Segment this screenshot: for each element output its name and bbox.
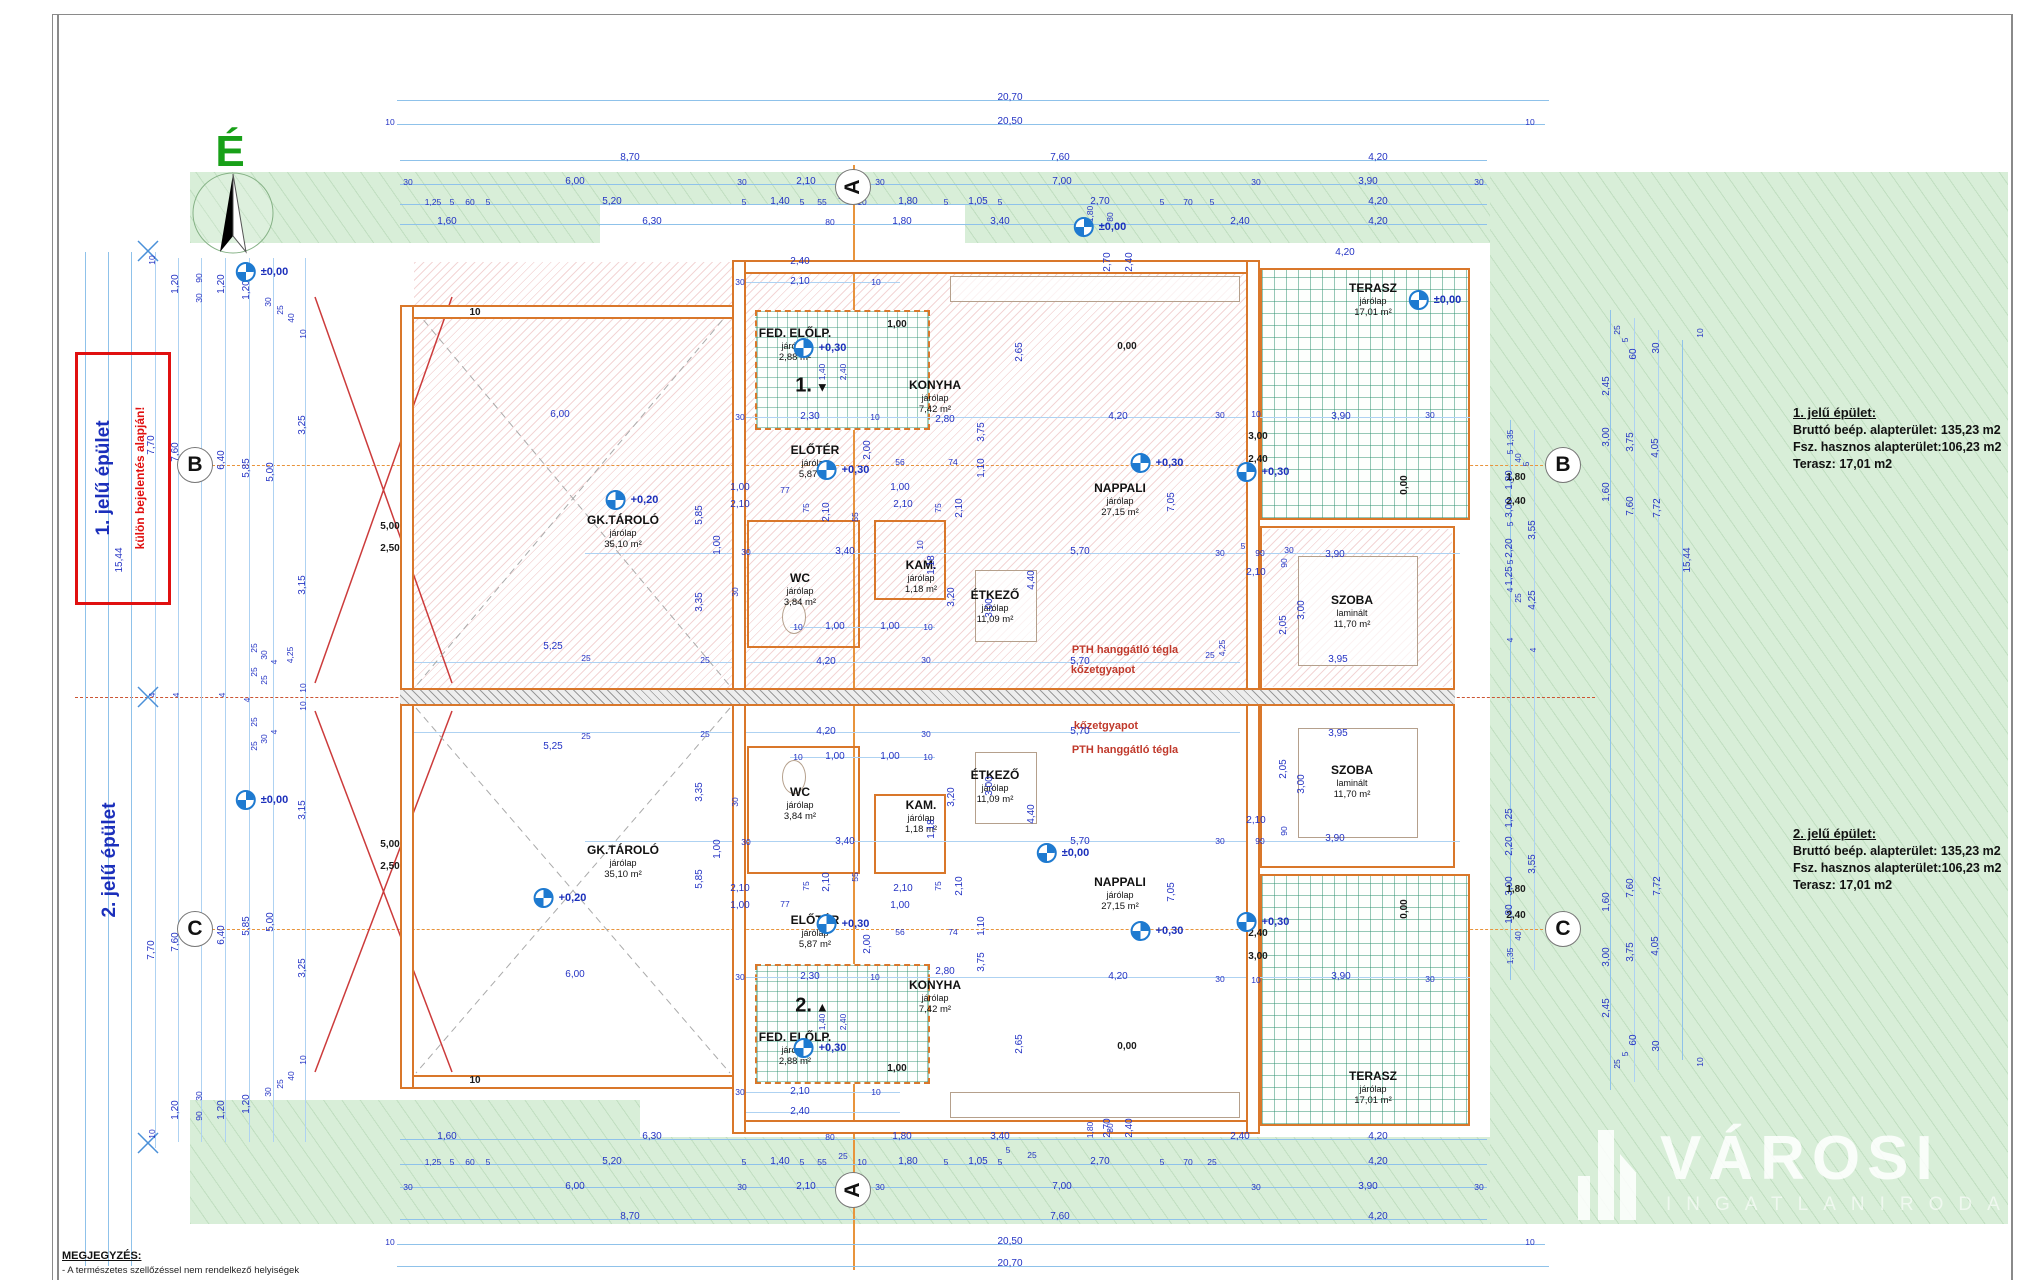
dimension-label: 30	[1215, 975, 1224, 984]
dim-line	[400, 1187, 1487, 1188]
room-name: ÉTKEZŐ	[971, 588, 1020, 603]
dimension-label: 6,00	[565, 970, 584, 980]
dimension-label: 10	[148, 255, 157, 264]
wall-house-top	[732, 260, 1260, 274]
dimension-label: 3,95	[1328, 729, 1347, 739]
info2-line: Terasz: 17,01 m2	[1793, 877, 2023, 894]
level-target-icon	[1074, 217, 1094, 237]
dimension-label: 2,05	[1279, 615, 1289, 634]
dimension-label: 4,20	[1368, 197, 1387, 207]
dimension-label: 25	[276, 1079, 285, 1088]
watermark-title: VÁROSI	[1660, 1128, 2015, 1190]
dimension-label: 2,50	[380, 862, 399, 872]
dimension-label: 25	[838, 1152, 847, 1161]
dimension-label: 10	[1525, 118, 1534, 127]
dimension-label: 1,80	[1086, 1122, 1095, 1139]
dimension-label: 5,00	[380, 522, 399, 532]
info1-line: Fsz. hasznos alapterület:106,23 m2	[1793, 439, 2023, 456]
room-area: 17,01 m²	[1349, 307, 1397, 319]
level-value: +0,30	[842, 464, 870, 476]
dimension-label: 3,35	[695, 592, 705, 611]
dimension-label: 1,00	[713, 535, 723, 554]
dimension-label: 40	[1514, 931, 1523, 940]
dimension-label: 5	[1621, 338, 1630, 343]
dimension-label: 90	[1255, 837, 1264, 846]
dimension-label: 3,55	[1528, 520, 1538, 539]
level-target-icon	[236, 790, 256, 810]
dimension-label: 10	[916, 540, 925, 549]
dimension-label: 1,25	[425, 1158, 442, 1167]
level-value: +0,30	[842, 918, 870, 930]
dimension-label: 25	[250, 741, 259, 750]
dimension-label: 30	[1251, 178, 1260, 187]
dimension-label: 70	[1183, 1158, 1192, 1167]
dimension-label: 1,80	[1506, 473, 1525, 483]
dimension-label: 15,44	[1683, 547, 1693, 572]
level-marker: +0,20	[606, 490, 659, 510]
dimension-label: 2,40	[1506, 911, 1525, 921]
dimension-label: 2,20	[1505, 538, 1515, 557]
room-area: 35,10 m²	[587, 869, 659, 881]
building1-banner-box	[75, 352, 171, 605]
dimension-label: 10	[299, 701, 308, 710]
dimension-label: 30	[264, 1087, 273, 1096]
dim-line	[1682, 340, 1683, 1060]
dimension-label: 4,05	[1651, 936, 1661, 955]
info1-line: Bruttó beép. alapterület: 135,23 m2	[1793, 422, 2023, 439]
dimension-label: 10	[1696, 328, 1705, 337]
room-area: 11,09 m²	[971, 614, 1020, 626]
watermark: VÁROSI INGATLANIRODA	[1660, 1128, 2015, 1216]
dimension-label: 30	[1215, 837, 1224, 846]
dimension-label: 5	[450, 198, 455, 207]
room-finish: járólap	[587, 858, 659, 869]
room-area: 27,15 m²	[1094, 901, 1146, 913]
dimension-label: 2,40	[1230, 1132, 1249, 1142]
info2-line: Bruttó beép. alapterület: 135,23 m2	[1793, 843, 2023, 860]
dimension-label: 30	[1284, 546, 1293, 555]
dimension-label: 7,72	[1653, 876, 1663, 895]
dimension-label: 2,70	[1103, 252, 1113, 271]
dimension-label: 30	[403, 1183, 412, 1192]
dimension-label: 4	[1529, 648, 1538, 653]
dimension-label: 55	[851, 512, 860, 521]
room-label: KONYHA járólap 7,42 m²	[909, 978, 961, 1016]
dimension-label: 55	[817, 198, 826, 207]
level-value: ±0,00	[1062, 847, 1089, 859]
dimension-label: 5,85	[242, 458, 252, 477]
dimension-label: 5	[944, 1158, 949, 1167]
room-name: NAPPALI	[1094, 875, 1146, 890]
room-name: KONYHA	[909, 978, 961, 993]
dimension-label: 2,10	[790, 1087, 809, 1097]
dimension-label: 3,40	[835, 547, 854, 557]
dimension-label: 30	[921, 656, 930, 665]
room-finish: járólap	[1349, 296, 1397, 307]
dimension-label: 2,10	[893, 500, 912, 510]
room-name: TERASZ	[1349, 281, 1397, 296]
room-name: WC	[784, 785, 816, 800]
dimension-label: 2,00	[863, 440, 873, 459]
room-label: SZOBA laminált 11,70 m²	[1331, 763, 1373, 801]
level-marker: +0,30	[1131, 921, 1184, 941]
dimension-label: 10	[793, 753, 802, 762]
kitchen-counter-2	[950, 1092, 1240, 1118]
room-name: NAPPALI	[1094, 481, 1146, 496]
dimension-label: 25	[276, 305, 285, 314]
dimension-label: 10	[1696, 1057, 1705, 1066]
entry-arrow-icon: ▲	[816, 1000, 829, 1015]
dimension-label: 10	[793, 623, 802, 632]
dimension-label: 1,00	[880, 752, 899, 762]
level-marker: +0,30	[794, 338, 847, 358]
level-value: +0,30	[1262, 916, 1290, 928]
room-area: 11,09 m²	[971, 794, 1020, 806]
sheet-border	[52, 14, 53, 1280]
dimension-label: 4	[1506, 588, 1515, 593]
dimension-label: 30	[921, 730, 930, 739]
level-target-icon	[606, 490, 626, 510]
dimension-label: 60	[465, 1158, 474, 1167]
dimension-label: 2,80	[935, 415, 954, 425]
level-target-icon	[817, 460, 837, 480]
material-note: PTH hanggátló tégla	[1072, 744, 1178, 756]
dimension-label: 5	[800, 1158, 805, 1167]
dimension-label: 1,00	[825, 622, 844, 632]
dimension-label: 2,40	[839, 364, 848, 381]
dim-line	[400, 1219, 1487, 1220]
dimension-label: 10	[469, 1076, 480, 1086]
level-marker: ±0,00	[1037, 843, 1089, 863]
dim-line	[397, 1266, 1549, 1267]
room-name: GK.TÁROLÓ	[587, 513, 659, 528]
dimension-label: 5,85	[695, 505, 705, 524]
room-name: GK.TÁROLÓ	[587, 843, 659, 858]
room-area: 35,10 m²	[587, 539, 659, 551]
dimension-label: 40	[287, 313, 296, 322]
dimension-label: 2,65	[1015, 1034, 1025, 1053]
building2-label: 2. jelű épület	[99, 802, 121, 917]
dimension-label: 5	[800, 198, 805, 207]
dim-line	[400, 1139, 1487, 1140]
dimension-label: 75	[934, 881, 943, 890]
dimension-label: 90	[1280, 826, 1289, 835]
dimension-label: 7,60	[1626, 496, 1636, 515]
dimension-label: 30	[875, 178, 884, 187]
dimension-label: 4	[218, 693, 227, 698]
dimension-label: 6,30	[642, 1132, 661, 1142]
dimension-label: 2,10	[730, 884, 749, 894]
dimension-label: 25	[581, 654, 590, 663]
dim-line	[735, 417, 1470, 418]
dimension-label: 10	[299, 683, 308, 692]
material-note: PTH hanggátló tégla	[1072, 644, 1178, 656]
dimension-label: 3,90	[1358, 1182, 1377, 1192]
dimension-label: 30	[264, 297, 273, 306]
dim-line	[397, 100, 1549, 101]
dimension-label: 30	[1251, 1183, 1260, 1192]
dimension-label: 10	[870, 973, 879, 982]
dimension-label: 7,05	[1167, 882, 1177, 901]
dimension-label: 1,60	[437, 217, 456, 227]
dimension-label: 4,25	[286, 647, 295, 664]
dimension-label: 3,00	[1297, 600, 1307, 619]
dimension-label: 30	[1215, 549, 1224, 558]
room-finish: járólap	[909, 993, 961, 1004]
dimension-label: 20,50	[997, 117, 1022, 127]
dimension-label: 2,45	[1602, 376, 1612, 395]
dimension-label: 10	[385, 1238, 394, 1247]
dimension-label: 20,50	[997, 1237, 1022, 1247]
dimension-label: 0,00	[1117, 342, 1136, 352]
dimension-label: 20,70	[997, 1259, 1022, 1269]
level-value: ±0,00	[1434, 294, 1461, 306]
dimension-label: 2,70	[1103, 1118, 1113, 1137]
dimension-label: 25	[1207, 1158, 1216, 1167]
dimension-label: 10	[870, 413, 879, 422]
room-area: 27,15 m²	[1094, 507, 1146, 519]
room-area: 11,70 m²	[1331, 789, 1373, 801]
wall-garage-top	[400, 305, 746, 319]
level-marker: ±0,00	[1074, 217, 1126, 237]
dimension-label: 5,85	[695, 869, 705, 888]
level-value: +0,20	[559, 892, 587, 904]
dim-line	[1534, 430, 1535, 970]
dimension-label: 6,30	[642, 217, 661, 227]
dimension-label: 4,20	[1335, 248, 1354, 258]
dimension-label: 2,40	[1230, 217, 1249, 227]
dimension-label: 1,40	[770, 1157, 789, 1167]
room-label: TERASZ járólap 17,01 m²	[1349, 1069, 1397, 1107]
dimension-label: 3,00	[1602, 427, 1612, 446]
room-label: GK.TÁROLÓ járólap 35,10 m²	[587, 843, 659, 881]
dimension-label: 6,00	[550, 410, 569, 420]
floor-plan-page: É 1. jelű épület külön bejelentés alapjá…	[0, 0, 2039, 1280]
dimension-label: 2,10	[893, 884, 912, 894]
grid-bubble: C	[1545, 911, 1581, 947]
dimension-label: 25	[1514, 593, 1523, 602]
room-finish: járólap	[784, 586, 816, 597]
dimension-label: 5	[1006, 1146, 1011, 1155]
room-label: NAPPALI járólap 27,15 m²	[1094, 875, 1146, 913]
dimension-label: 5,00	[266, 462, 276, 481]
dimension-label: 30	[741, 838, 750, 847]
entry-number: 1.	[795, 375, 812, 397]
level-target-icon	[1409, 290, 1429, 310]
level-marker: ±0,00	[236, 262, 288, 282]
dimension-label: 3,00	[1602, 947, 1612, 966]
dimension-label: 1,35	[1506, 430, 1515, 447]
dimension-label: 1,80	[898, 197, 917, 207]
dimension-label: 30	[195, 1091, 204, 1100]
dimension-label: 30	[731, 797, 740, 806]
level-target-icon	[1131, 453, 1151, 473]
room-name: ELŐTÉR	[791, 443, 840, 458]
dimension-label: 2,00	[863, 934, 873, 953]
dimension-label: 4	[148, 693, 157, 698]
kitchen-counter-1	[950, 276, 1240, 302]
dimension-label: 0,00	[1117, 1042, 1136, 1052]
dimension-label: 10	[1251, 410, 1260, 419]
grid-bubble: A	[835, 1172, 871, 1208]
dimension-label: 3,00	[985, 776, 995, 795]
notes-title: MEGJEGYZÉS:	[62, 1250, 299, 1262]
dimension-label: 4,05	[1651, 438, 1661, 457]
dim-line	[400, 160, 1487, 161]
dimension-label: 1,20	[242, 280, 252, 299]
dimension-label: 3,95	[1328, 655, 1347, 665]
dimension-label: 3,75	[977, 952, 987, 971]
dimension-label: 30	[735, 278, 744, 287]
dimension-label: 4,20	[816, 657, 835, 667]
room-name: KAM.	[905, 798, 937, 813]
dimension-label: 5,25	[543, 742, 562, 752]
dimension-label: 25	[250, 667, 259, 676]
dimension-label: 1,00	[890, 483, 909, 493]
building1-label: 1. jelű épület	[93, 420, 115, 535]
dimension-label: 5	[486, 1158, 491, 1167]
dimension-label: 2,40	[1506, 497, 1525, 507]
dimension-label: 1,60	[1602, 892, 1612, 911]
dimension-label: 30	[1425, 411, 1434, 420]
dimension-label: 3,90	[1331, 412, 1350, 422]
dimension-label: 2,20	[1505, 836, 1515, 855]
level-marker: ±0,00	[236, 790, 288, 810]
dimension-label: 2,10	[730, 500, 749, 510]
dimension-label: 2,10	[790, 277, 809, 287]
level-value: +0,30	[819, 342, 847, 354]
dimension-label: 30	[260, 650, 269, 659]
dimension-label: 30	[403, 178, 412, 187]
room-finish: laminált	[1331, 608, 1373, 619]
level-value: +0,30	[1262, 466, 1290, 478]
dimension-label: 4	[270, 730, 279, 735]
dimension-label: 1,00	[890, 901, 909, 911]
site-area	[190, 1100, 640, 1224]
dimension-label: 0,00	[1400, 475, 1410, 494]
dimension-label: 5,00	[380, 840, 399, 850]
dimension-label: 30	[1425, 975, 1434, 984]
dim-line	[790, 627, 935, 628]
grid-bubble: C	[177, 911, 213, 947]
dimension-label: 4	[243, 698, 252, 703]
dimension-label: 2,05	[1279, 759, 1289, 778]
dimension-label: 4,25	[1528, 590, 1538, 609]
dimension-label: 6,40	[217, 450, 227, 469]
dimension-label: 30	[737, 178, 746, 187]
room-finish: laminált	[1331, 778, 1373, 789]
dimension-label: 30	[741, 548, 750, 557]
dimension-label: 5	[450, 1158, 455, 1167]
room-finish: járólap	[587, 528, 659, 539]
dimension-label: 2,70	[1090, 1157, 1109, 1167]
notes-block: MEGJEGYZÉS: - A természetes szellőzéssel…	[62, 1250, 299, 1280]
dimension-label: 7,00	[1052, 177, 1071, 187]
site-area	[1490, 172, 2008, 1224]
dim-line	[740, 1112, 900, 1113]
room-label: SZOBA laminált 11,70 m²	[1331, 593, 1373, 631]
dimension-label: 60	[465, 198, 474, 207]
dimension-label: 1,10	[977, 458, 987, 477]
room-label: WC járólap 3,84 m²	[784, 785, 816, 823]
dimension-label: 1,60	[437, 1132, 456, 1142]
room-finish: járólap	[971, 603, 1020, 614]
dimension-label: 2,10	[1246, 568, 1265, 578]
room-area: 17,01 m²	[1349, 1095, 1397, 1107]
dimension-label: 1,25	[425, 198, 442, 207]
dimension-label: 5	[1210, 198, 1215, 207]
dimension-label: 4,20	[1368, 1157, 1387, 1167]
dimension-label: 10	[299, 329, 308, 338]
dimension-label: 90	[1255, 549, 1264, 558]
dimension-label: 5	[1506, 522, 1515, 527]
room-name: SZOBA	[1331, 593, 1373, 608]
level-marker: +0,20	[534, 888, 587, 908]
room-area: 5,87 m²	[791, 939, 840, 951]
building1-sublabel: külön bejelentés alapján!	[133, 407, 147, 550]
dimension-label: 60	[1629, 1034, 1639, 1045]
dimension-label: 5	[486, 198, 491, 207]
dimension-label: 3,75	[1626, 942, 1636, 961]
room-finish: járólap	[1094, 496, 1146, 507]
dimension-label: 25	[1613, 325, 1622, 334]
level-target-icon	[534, 888, 554, 908]
dimension-label: 5	[1621, 1052, 1630, 1057]
dimension-label: 77	[780, 486, 789, 495]
dimension-label: 10	[857, 1158, 866, 1167]
entry-marker: 1.▼	[795, 375, 829, 398]
level-marker: +0,30	[794, 1038, 847, 1058]
dimension-label: 25	[250, 717, 259, 726]
grid-bubble: B	[1545, 447, 1581, 483]
dimension-label: 2,10	[796, 1182, 815, 1192]
dimension-label: 10	[871, 278, 880, 287]
dimension-label: 5	[742, 198, 747, 207]
dimension-label: 10	[148, 1129, 157, 1138]
dimension-label: 60	[1629, 348, 1639, 359]
level-value: +0,20	[631, 494, 659, 506]
dimension-label: 30	[1474, 1183, 1483, 1192]
dimension-label: 8,70	[620, 153, 639, 163]
entry-number: 2.	[795, 995, 812, 1017]
level-target-icon	[1131, 921, 1151, 941]
dimension-label: 5	[1522, 462, 1531, 467]
dimension-label: 4,40	[1027, 804, 1037, 823]
dimension-label: 6,00	[565, 177, 584, 187]
dimension-label: 3,15	[298, 575, 308, 594]
dimension-label: 3,40	[990, 1132, 1009, 1142]
room-finish: járólap	[909, 393, 961, 404]
room-name: WC	[784, 571, 816, 586]
level-value: +0,30	[1156, 457, 1184, 469]
dimension-label: 1,00	[887, 1064, 906, 1074]
room-name: ÉTKEZŐ	[971, 768, 1020, 783]
dimension-label: 5,70	[1070, 657, 1089, 667]
dimension-label: 2,10	[1246, 816, 1265, 826]
dimension-label: 1,05	[968, 1157, 987, 1167]
dimension-label: 1,00	[730, 901, 749, 911]
sheet-border	[52, 14, 2012, 15]
dim-line	[400, 184, 1487, 185]
room-label: GK.TÁROLÓ járólap 35,10 m²	[587, 513, 659, 551]
dimension-label: 74	[948, 928, 957, 937]
dimension-label: 90	[195, 273, 204, 282]
dimension-label: 10	[469, 308, 480, 318]
dimension-label: 8,70	[620, 1212, 639, 1222]
sheet-border	[57, 14, 59, 1280]
dimension-label: 25	[1027, 1151, 1036, 1160]
dimension-label: 30	[1652, 342, 1662, 353]
